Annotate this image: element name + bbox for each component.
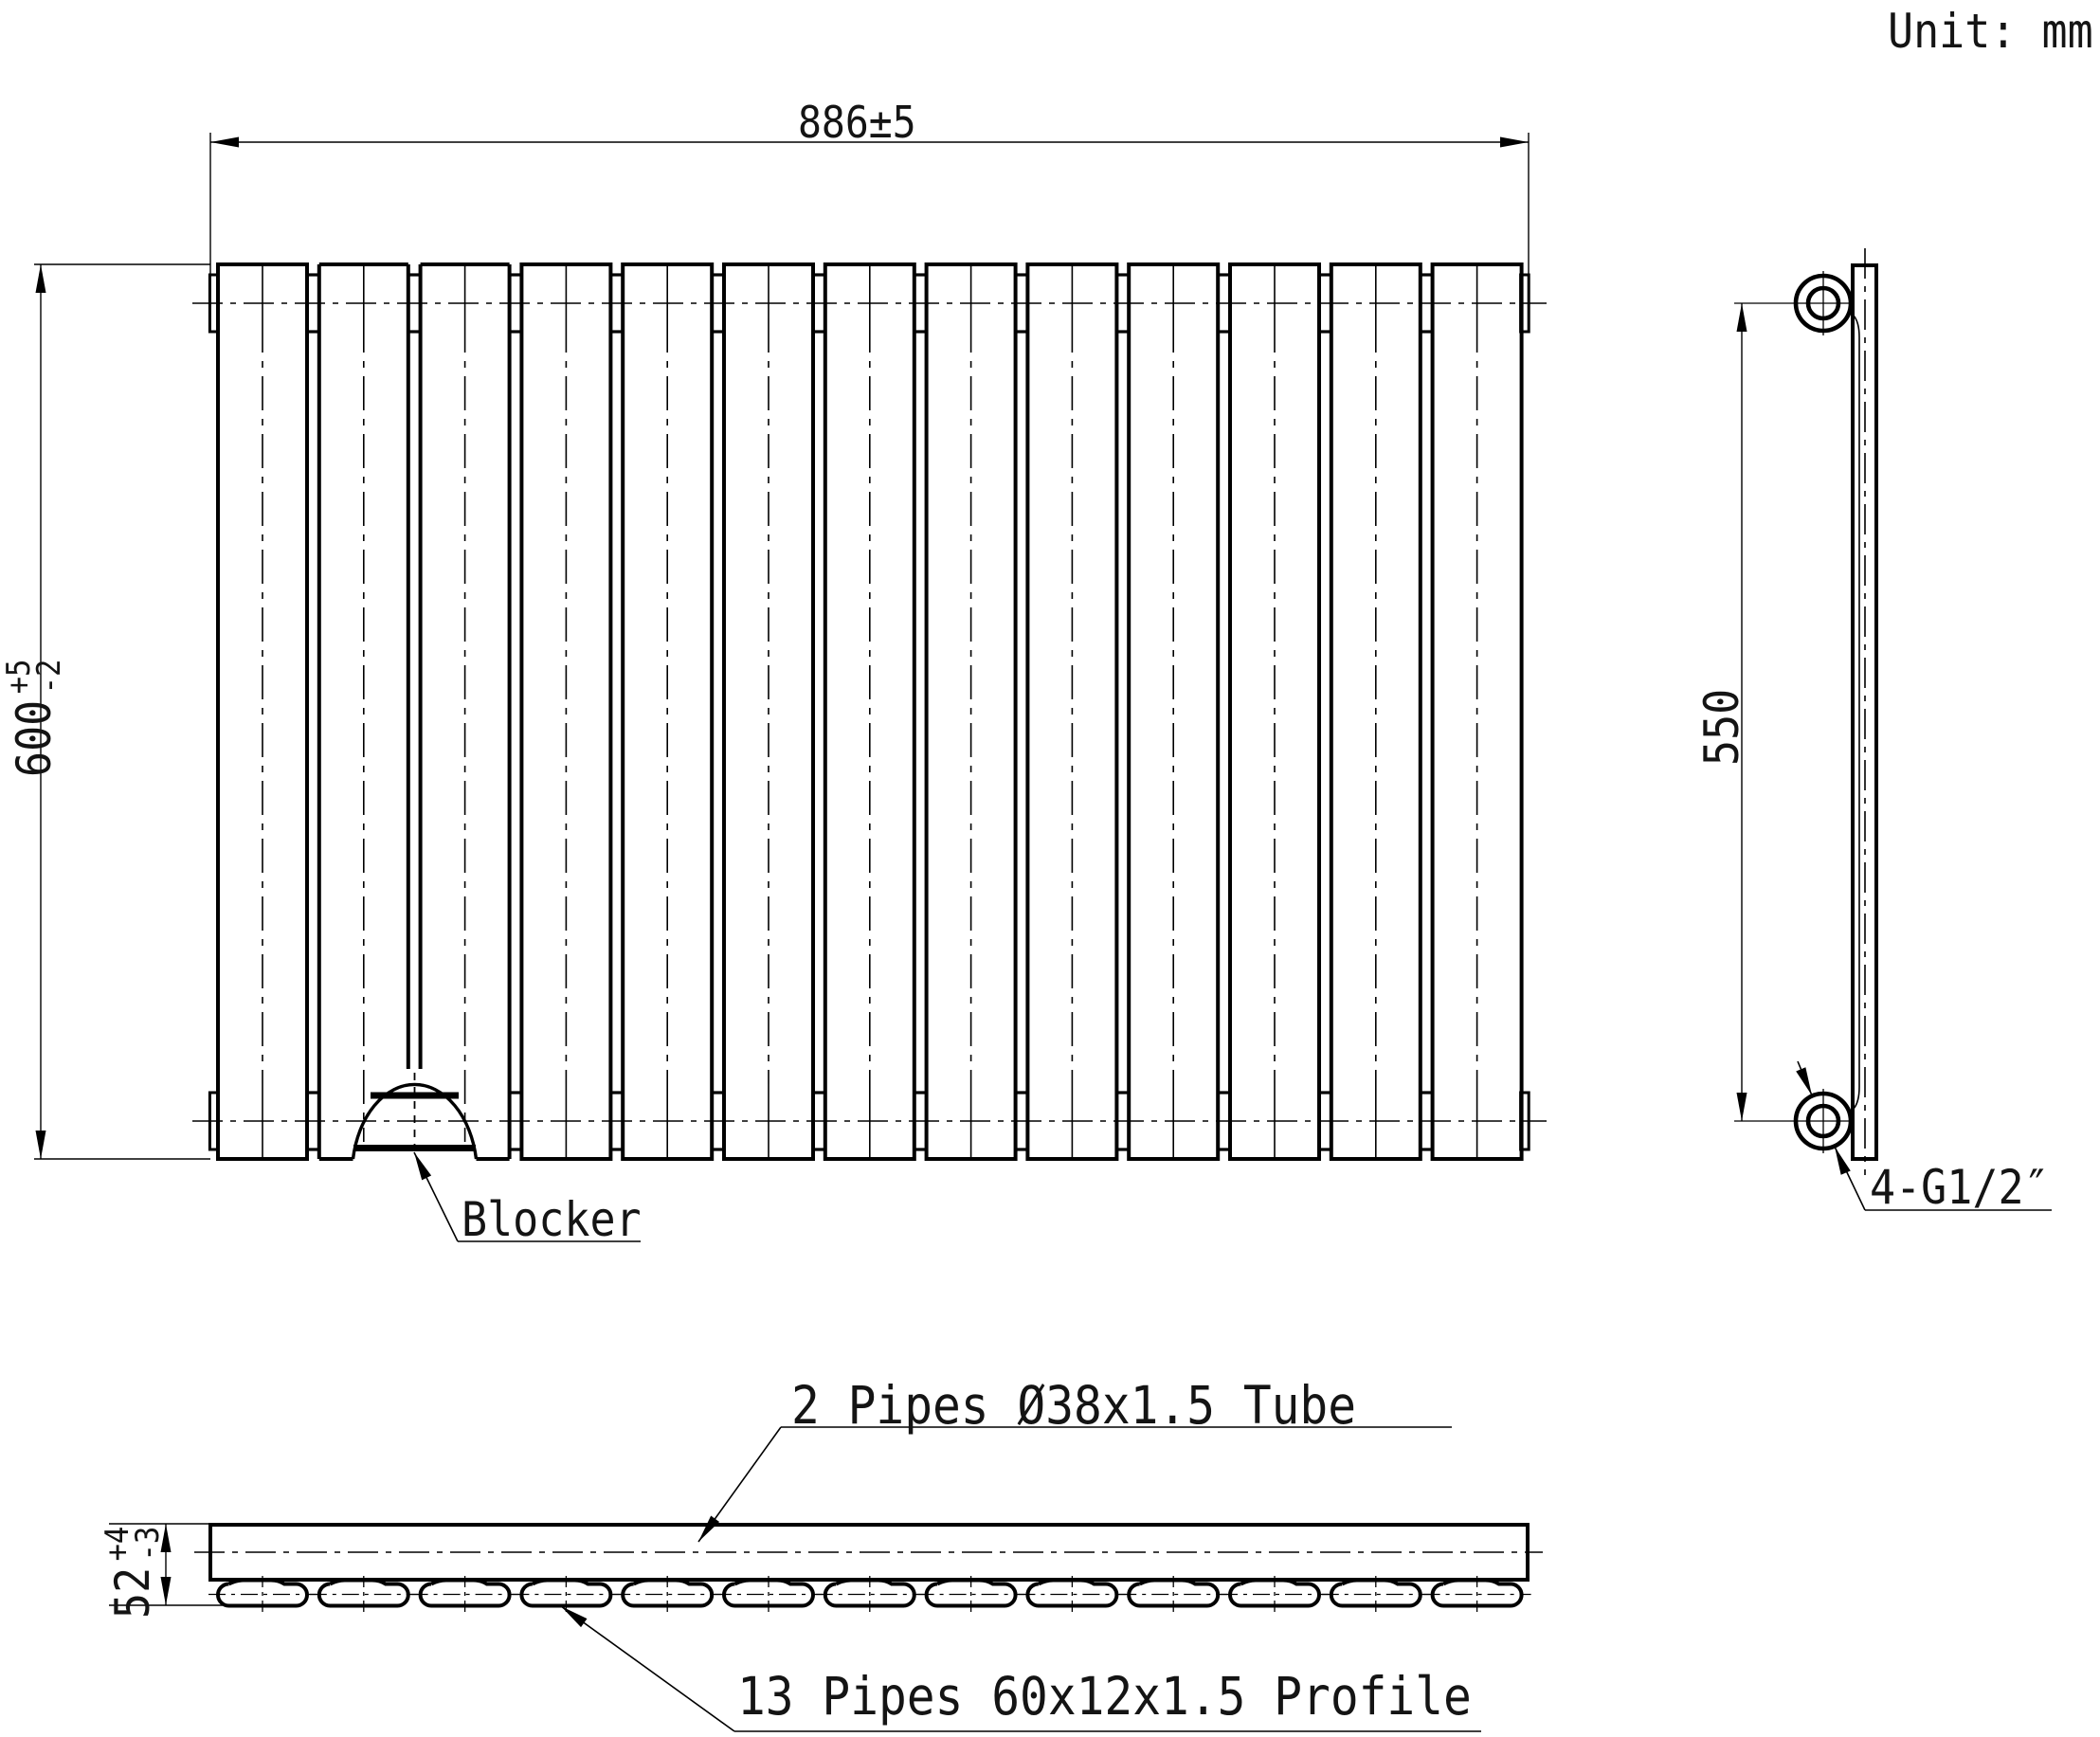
leader-arrow [561, 1606, 588, 1627]
bottom-thickness-dimension-text: 52 +4 -3 [102, 1527, 164, 1619]
tube-spec-label: 2 Pipes Ø38x1.5 Tube [791, 1380, 1356, 1432]
front-width-dimension-text: 886±5 [798, 100, 916, 144]
leader-line [1835, 1147, 1865, 1210]
unit-label: Unit: mm [1888, 8, 2093, 55]
dimension-width-886 [210, 133, 1529, 277]
bottom-thickness-tolerance: +4 -3 [102, 1527, 164, 1562]
dimension-arrow [1737, 303, 1747, 332]
dimension-arrow [1500, 137, 1529, 148]
profile-spec-label: 13 Pipes 60x12x1.5 Profile [737, 1671, 1472, 1723]
technical-drawing [0, 0, 2100, 1737]
leader-line [561, 1606, 734, 1731]
dimension-arrow [36, 1131, 46, 1159]
dimension-arrow [1737, 1093, 1747, 1121]
bottom-view [194, 1525, 1543, 1612]
blocker-detail [353, 1073, 477, 1159]
front-view [192, 264, 1547, 1159]
front-height-tolerance: +5 -2 [4, 660, 65, 695]
leader-arrow [1796, 1067, 1812, 1095]
side-view [1734, 248, 1876, 1175]
drawing-canvas: Unit: mm 886±5 600 +5 -2 Blocker 550 4-G… [0, 0, 2100, 1737]
side-height-dimension-text: 550 [1698, 689, 1746, 766]
leader-arrow [698, 1515, 719, 1542]
blocker-label: Blocker [462, 1196, 642, 1243]
front-height-dimension-text: 600 +5 -2 [4, 660, 65, 777]
leader-arrow [414, 1152, 431, 1180]
dimension-arrow [36, 264, 46, 293]
connection-size-label: 4-G1/2″ [1870, 1164, 2050, 1211]
dimension-arrow [210, 137, 239, 148]
